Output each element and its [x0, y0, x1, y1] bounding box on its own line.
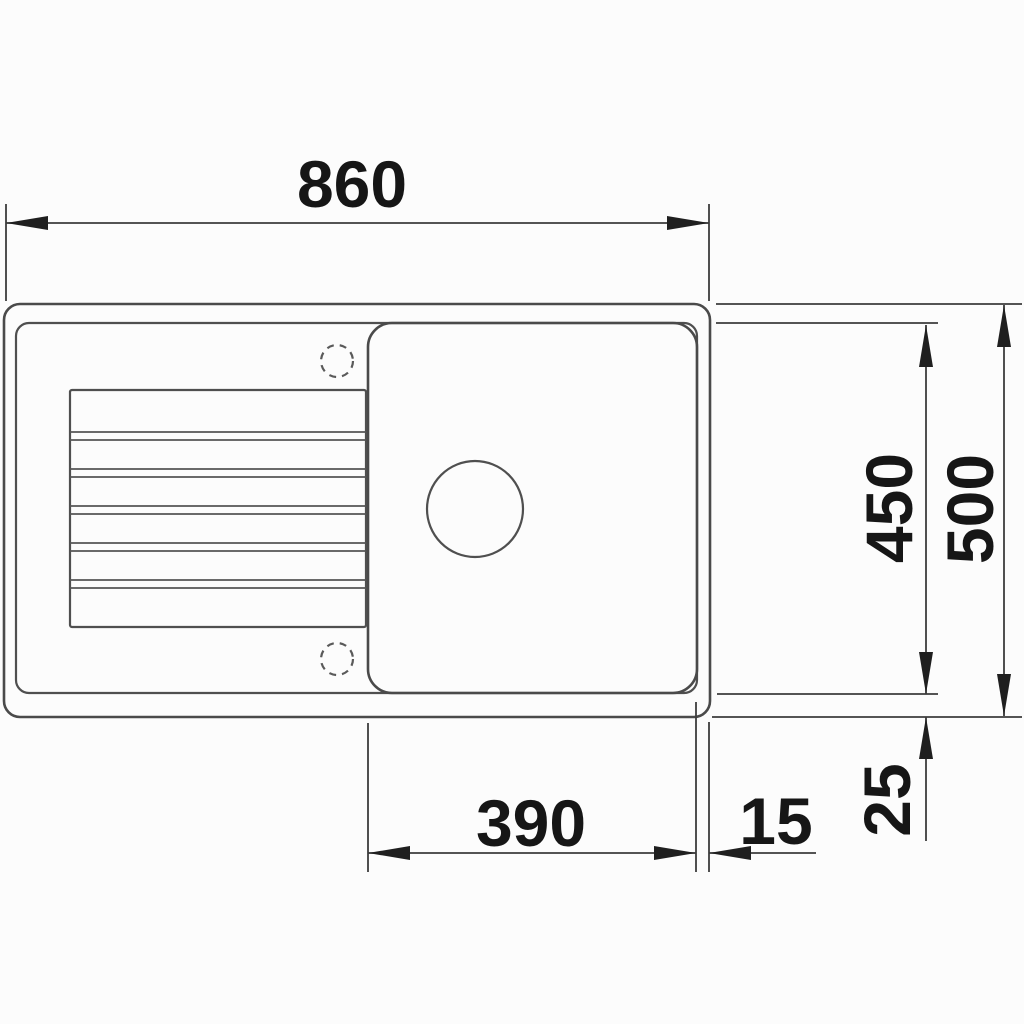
dimension-label-390: 390 — [476, 786, 586, 860]
dimension-label-860: 860 — [297, 147, 407, 221]
tap-hole-top — [321, 345, 353, 377]
dimension-total-width: 860 — [6, 147, 709, 301]
sink-body — [4, 304, 710, 717]
arrowhead-down — [997, 674, 1011, 716]
dimension-rim-edge-gap: 25 — [850, 717, 933, 841]
sink-technical-drawing: 860 450 500 390 — [0, 0, 1024, 1024]
arrowhead-up — [919, 325, 933, 367]
arrowhead-up — [997, 305, 1011, 347]
drain-hole — [427, 461, 523, 557]
arrowhead-right — [667, 216, 709, 230]
dimension-label-25: 25 — [850, 763, 924, 836]
sink-rim-outline — [16, 323, 697, 693]
drawing-canvas: 860 450 500 390 — [0, 0, 1024, 1024]
dimension-label-15: 15 — [739, 784, 812, 858]
arrowhead-right — [654, 846, 696, 860]
sink-bowl-outline — [368, 323, 697, 693]
drainboard-ribs — [70, 432, 366, 588]
tap-hole-bottom — [321, 643, 353, 675]
dimension-bowl-edge-gap: 15 — [709, 722, 816, 872]
dimension-label-500: 500 — [933, 454, 1007, 564]
arrowhead-left — [6, 216, 48, 230]
drainboard — [70, 390, 366, 627]
dimension-label-450: 450 — [852, 453, 926, 563]
sink-outer-outline — [4, 304, 710, 717]
dimension-inner-depth: 450 — [716, 323, 938, 694]
arrowhead-up — [919, 717, 933, 759]
drainboard-outline — [70, 390, 366, 627]
arrowhead-left — [368, 846, 410, 860]
arrowhead-down — [919, 652, 933, 694]
dimension-bowl-width: 390 — [368, 702, 696, 872]
